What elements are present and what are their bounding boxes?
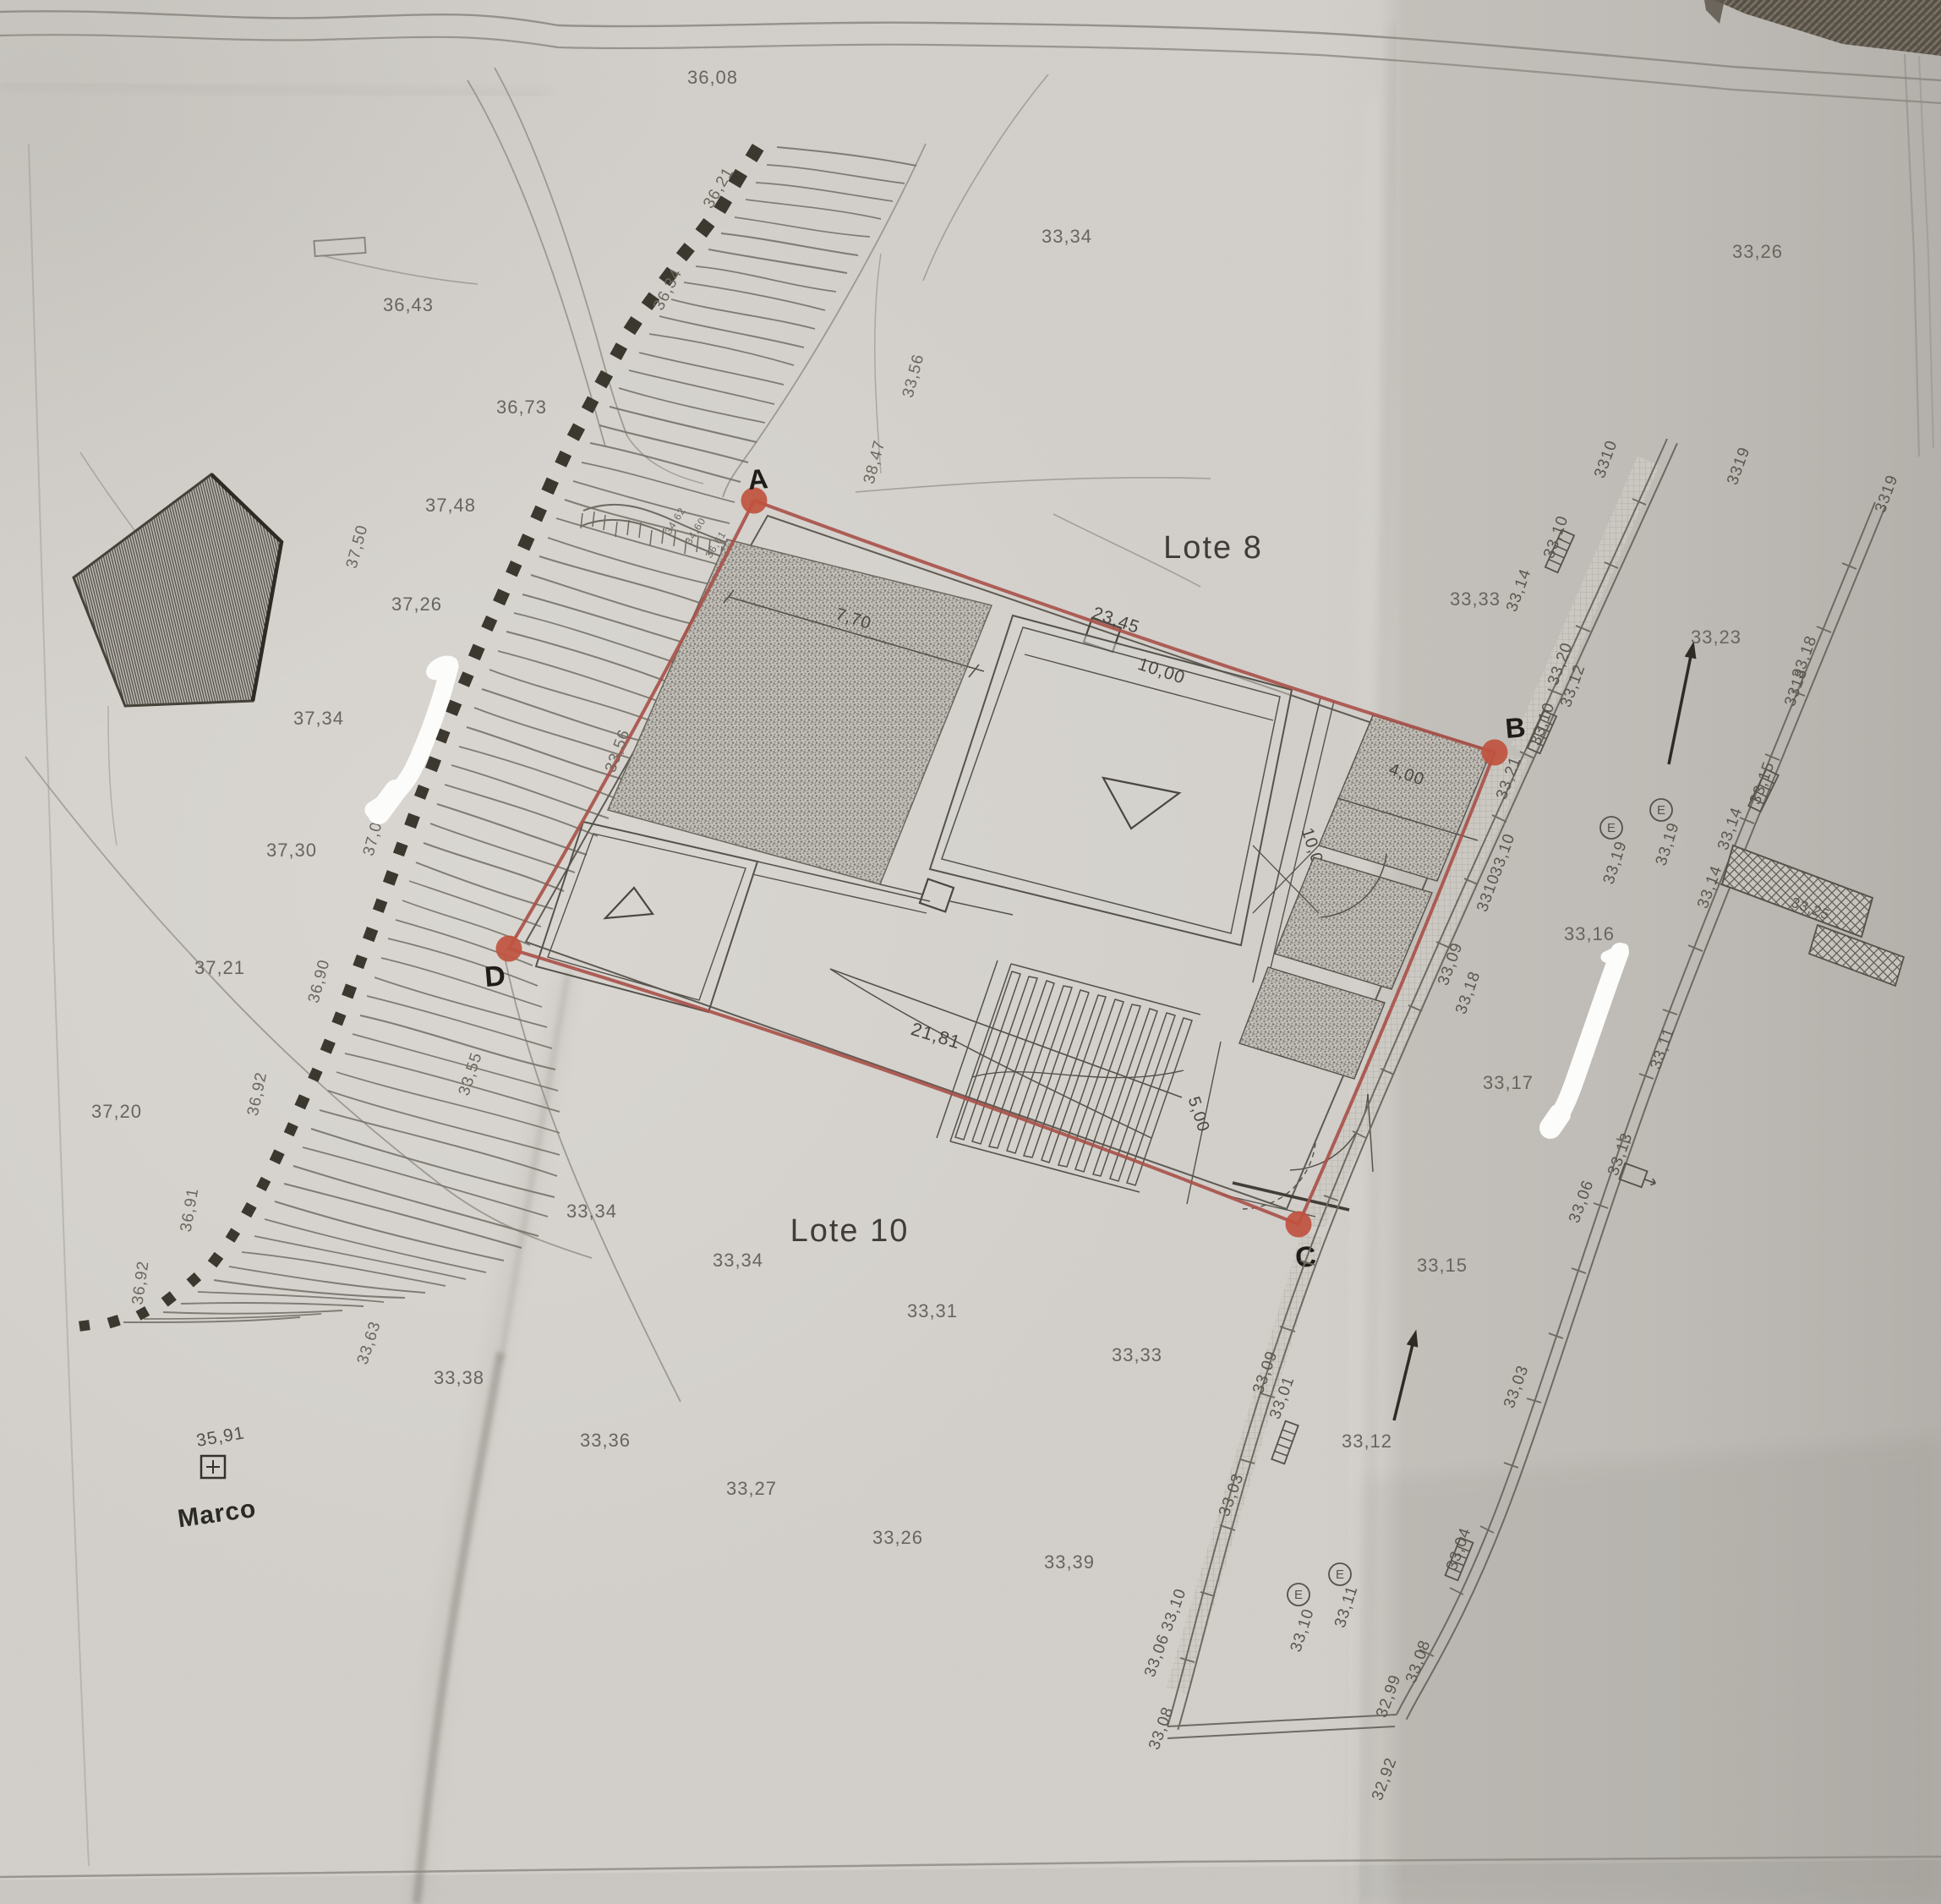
svg-text:33,17: 33,17 [1483,1072,1534,1093]
svg-text:33,39: 33,39 [1044,1551,1095,1573]
svg-text:33,23: 33,23 [1691,626,1741,648]
svg-text:33,26: 33,26 [1732,241,1783,262]
svg-text:33,27: 33,27 [726,1478,777,1499]
svg-text:36,73: 36,73 [496,397,547,418]
svg-text:33,33: 33,33 [1112,1344,1162,1365]
svg-text:Lote 8: Lote 8 [1163,530,1263,566]
svg-text:37,21: 37,21 [194,957,245,978]
svg-text:36,08: 36,08 [687,67,738,88]
svg-text:E: E [1336,1568,1344,1582]
svg-text:37,30: 37,30 [266,840,317,861]
svg-text:33,34: 33,34 [713,1250,763,1271]
svg-text:37,26: 37,26 [391,594,442,615]
svg-text:33,34: 33,34 [566,1201,617,1222]
svg-text:37,20: 37,20 [91,1101,142,1122]
svg-text:33,31: 33,31 [907,1300,958,1321]
svg-text:33,34: 33,34 [1042,226,1092,247]
svg-text:33,33: 33,33 [1450,588,1501,610]
svg-text:36,43: 36,43 [383,294,434,315]
svg-text:B: B [1504,711,1528,744]
svg-text:E: E [1607,821,1616,835]
svg-text:E: E [1294,1588,1303,1602]
svg-text:33,12: 33,12 [1342,1431,1392,1452]
svg-text:E: E [1657,803,1665,818]
svg-text:33,38: 33,38 [434,1367,484,1388]
svg-text:D: D [484,960,508,993]
svg-text:33,15: 33,15 [1417,1255,1468,1276]
svg-text:33,36: 33,36 [580,1430,631,1451]
svg-text:33,26: 33,26 [872,1527,923,1548]
svg-text:37,48: 37,48 [425,495,476,516]
svg-text:37,34: 37,34 [293,708,344,729]
svg-text:A: A [746,462,770,495]
svg-text:Lote 10: Lote 10 [790,1213,910,1249]
svg-text:33,16: 33,16 [1564,923,1615,944]
